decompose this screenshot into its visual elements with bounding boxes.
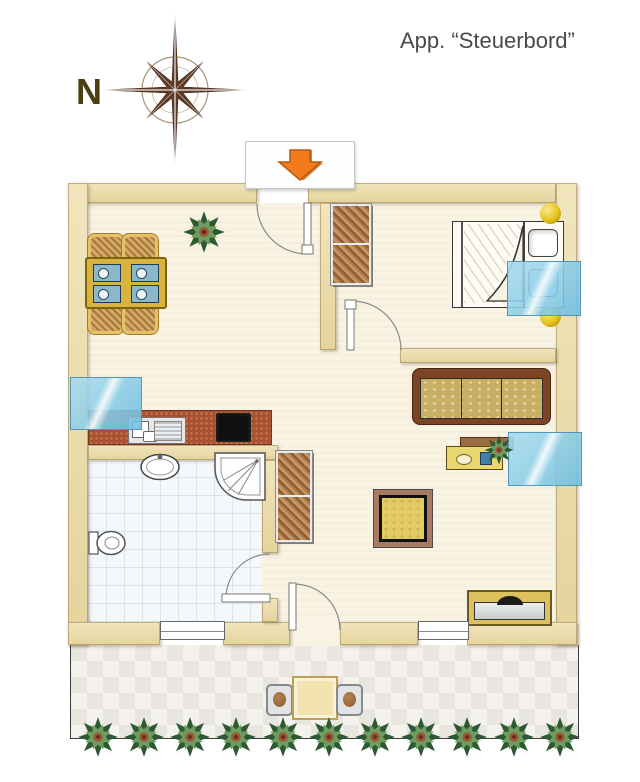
- arrow-down-icon: [246, 142, 354, 188]
- compass-rose-icon: N: [76, 15, 247, 163]
- terrace-chair: [336, 684, 363, 716]
- wall-bottom-2: [223, 622, 290, 645]
- hall-cabinet: [276, 451, 312, 542]
- living-room-window-bottom: [418, 621, 469, 640]
- placemat: [131, 285, 159, 303]
- compass-star: [103, 15, 247, 163]
- terrace-chair: [266, 684, 293, 716]
- bathroom-floor: [88, 460, 262, 622]
- dining-table: [85, 257, 167, 309]
- placemat: [131, 264, 159, 282]
- wall-bedroom-bottom: [400, 348, 556, 363]
- plate: [456, 454, 472, 465]
- north-label: N: [76, 71, 102, 112]
- kitchen-window-glass: [70, 377, 142, 430]
- placemat: [93, 285, 121, 303]
- book: [480, 452, 492, 465]
- wall-bathroom-right-stub: [262, 598, 278, 622]
- sofa: [412, 368, 551, 425]
- living-room-window-glass: [508, 432, 582, 486]
- sideboard: [446, 446, 503, 470]
- wall-top-left: [68, 183, 257, 203]
- wall-bottom-1: [68, 622, 160, 645]
- stove: [216, 413, 251, 442]
- page-title: App. “Steuerbord”: [400, 28, 620, 54]
- pillow: [528, 229, 558, 257]
- coffee-table: [374, 490, 432, 547]
- entrance-marker: [245, 141, 355, 189]
- wall-bathroom-top: [88, 445, 278, 460]
- floorplan-page: App. “Steuerbord”: [0, 0, 640, 782]
- terrace-table: [292, 676, 338, 720]
- bathroom-window: [160, 621, 225, 640]
- placemat: [93, 264, 121, 282]
- wall-bottom-3: [340, 622, 418, 645]
- bedroom-window-glass: [507, 261, 581, 316]
- bedroom-wardrobe: [331, 204, 371, 285]
- tv-bench: [467, 590, 552, 626]
- terrace-door-threshold: [290, 620, 340, 646]
- bedside-lamp: [540, 203, 561, 224]
